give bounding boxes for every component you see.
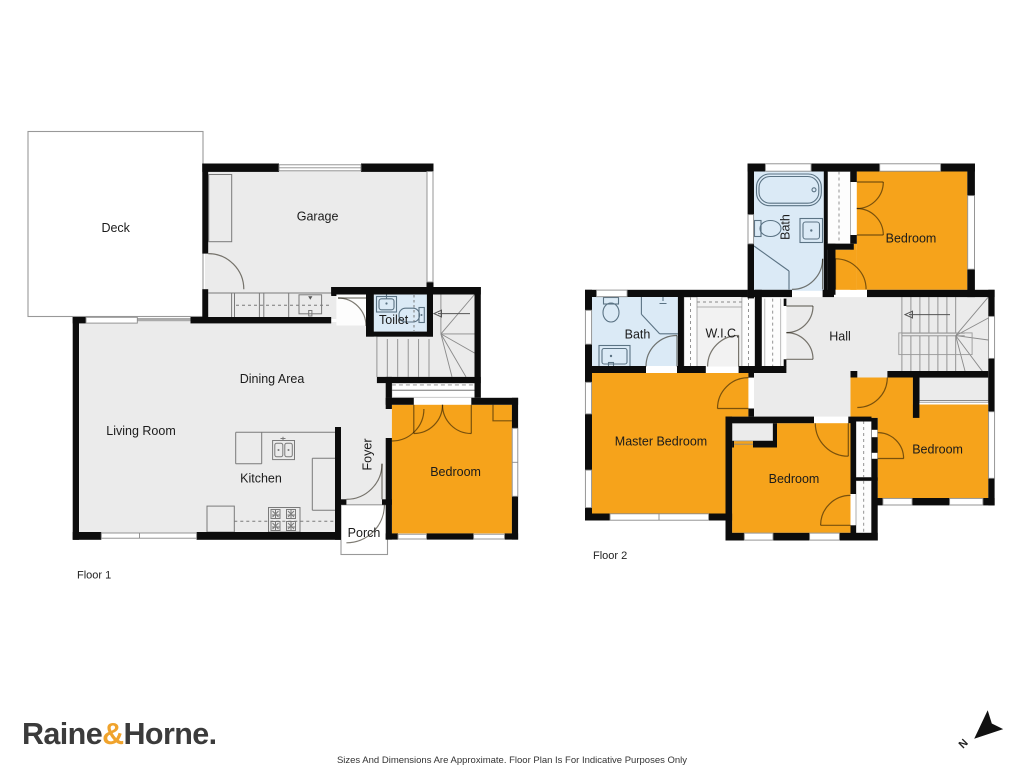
svg-text:Sizes And Dimensions Are Appro: Sizes And Dimensions Are Approximate. Fl… [337,755,687,766]
svg-text:Deck: Deck [101,221,130,235]
svg-text:Bedroom: Bedroom [769,472,820,486]
svg-text:Bath: Bath [625,328,651,342]
svg-text:Kitchen: Kitchen [240,472,282,486]
svg-text:Bath: Bath [779,214,793,240]
svg-text:Raine&Horne.: Raine&Horne. [22,717,217,751]
svg-text:Foyer: Foyer [361,439,375,471]
svg-text:Hall: Hall [829,330,851,344]
svg-text:Bedroom: Bedroom [912,443,963,457]
svg-text:Floor 2: Floor 2 [593,550,627,562]
svg-text:Bedroom: Bedroom [886,232,937,246]
svg-text:Dining Area: Dining Area [240,372,305,386]
svg-text:Garage: Garage [297,210,339,224]
svg-text:Toilet: Toilet [379,313,409,327]
svg-text:Bedroom: Bedroom [430,465,481,479]
svg-text:Master Bedroom: Master Bedroom [615,435,707,449]
svg-text:W.I.C.: W.I.C. [705,327,739,341]
svg-text:Living Room: Living Room [106,424,175,438]
svg-text:Floor 1: Floor 1 [77,570,111,582]
svg-text:Porch: Porch [348,526,381,540]
